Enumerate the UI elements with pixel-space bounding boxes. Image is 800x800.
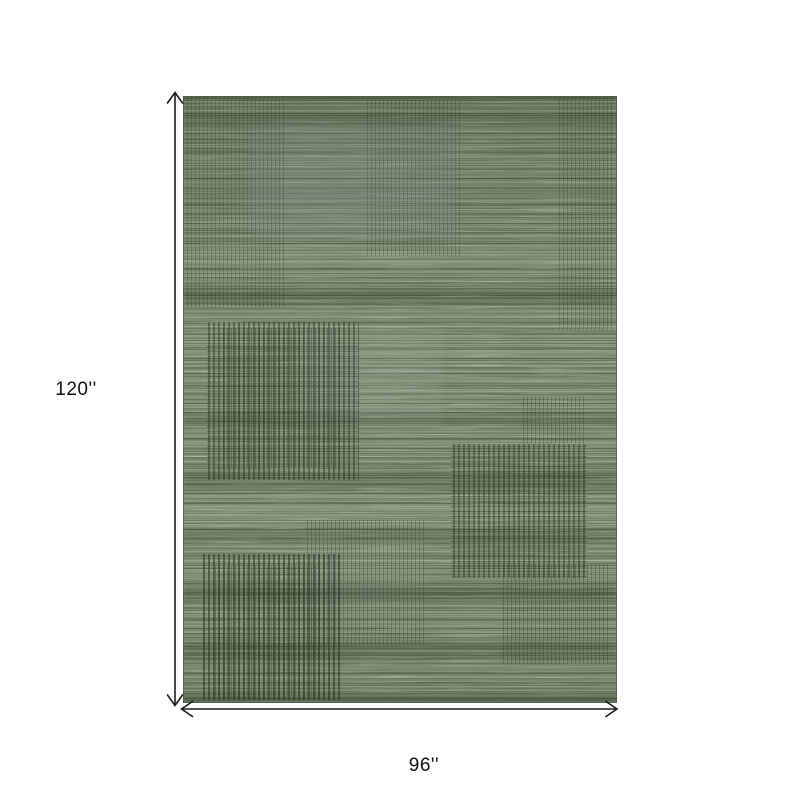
width-arrowhead-right (606, 702, 617, 717)
height-dimension-label: 120'' (40, 379, 112, 401)
width-dimension-arrow (182, 702, 618, 717)
width-arrowhead-left (182, 702, 193, 717)
rug-image (183, 96, 617, 703)
height-arrowhead-bottom (168, 695, 183, 706)
width-dimension-label: 96'' (384, 755, 464, 777)
height-dimension-arrow (168, 93, 183, 706)
rug-texture (183, 96, 617, 703)
height-arrowhead-top (168, 93, 183, 104)
rug-texture-layers (183, 96, 617, 703)
page-canvas: 120'' 96'' (0, 0, 800, 800)
